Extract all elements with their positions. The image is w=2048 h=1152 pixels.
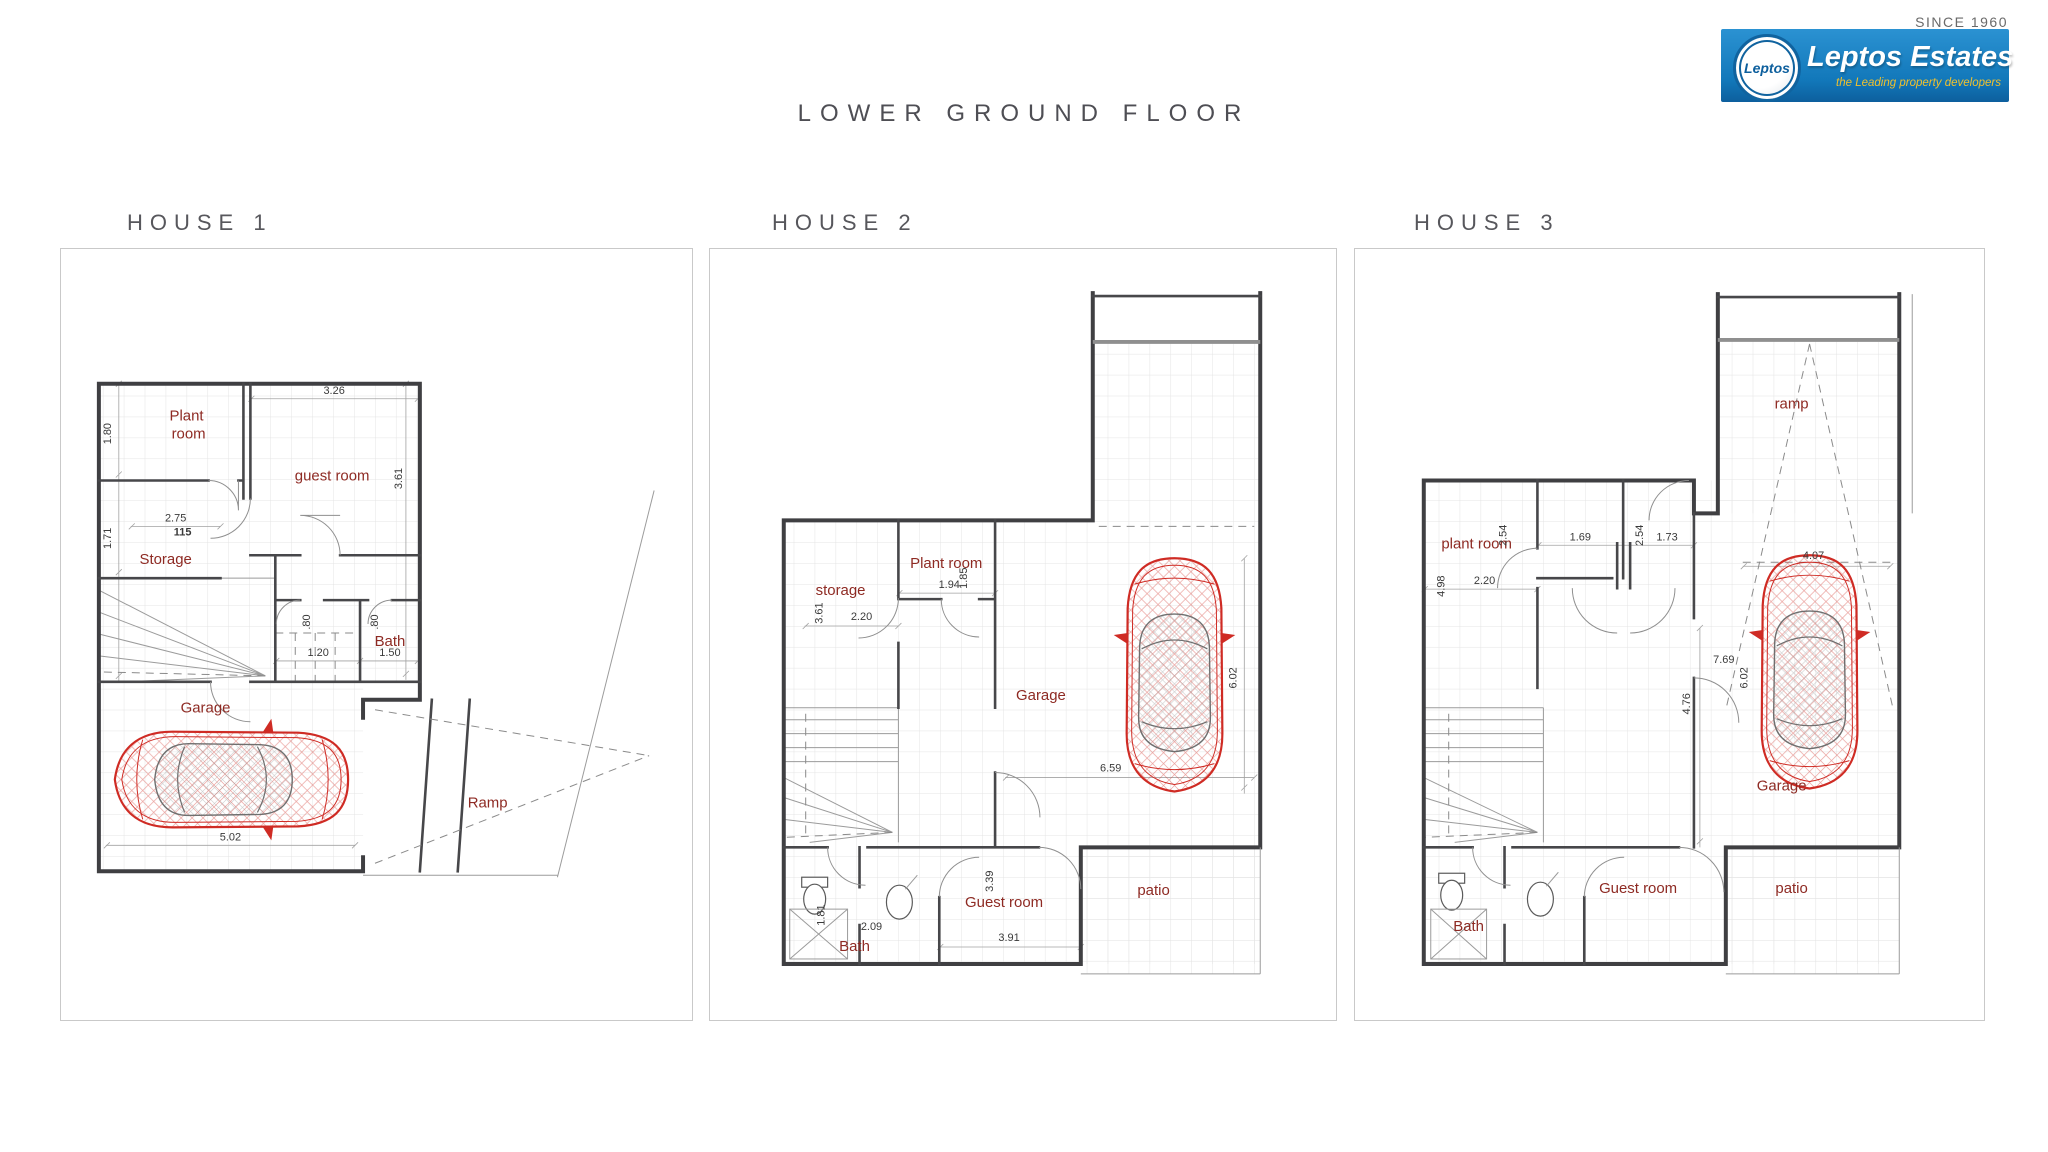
dim-080-b: .80 <box>369 614 381 629</box>
dim-1-81: 1.81 <box>816 904 828 925</box>
dim-5-02: 5.02 <box>220 831 241 843</box>
dim-1-80: 1.80 <box>102 423 114 444</box>
since-1960-text: SINCE 1960 <box>1915 14 2008 30</box>
dim-2-75: 2.75 <box>165 512 186 524</box>
dim-4-98: 4.98 <box>1436 575 1448 596</box>
dim-2-54-b: 2.54 <box>1634 525 1646 546</box>
logo-tagline: the Leading property developers <box>1807 77 2001 89</box>
dim-1-71: 1.71 <box>102 528 114 549</box>
room-label-plant: Plant <box>169 408 204 425</box>
leptos-estates-logo: Leptos Leptos Estates the Leading proper… <box>1721 29 2009 102</box>
house-2-floor-plan: storage Plant room Garage Guest room Bat… <box>710 249 1336 1020</box>
house-1-floor-plan: Plant room guest room Storage Bath Garag… <box>61 249 692 1020</box>
room-label-storage: Storage <box>140 551 192 568</box>
dim-080-a: .80 <box>301 614 313 629</box>
dim-4-76: 4.76 <box>1681 693 1693 714</box>
room-label-garage: Garage <box>1757 778 1807 795</box>
dim-1-69: 1.69 <box>1570 531 1591 543</box>
dim-2-20: 2.20 <box>1474 575 1495 587</box>
dim-3-61: 3.61 <box>814 602 826 623</box>
room-label-plant: Plant room <box>910 555 982 572</box>
house-3-heading: HOUSE 3 <box>1414 210 1560 236</box>
dim-6-02: 6.02 <box>1739 667 1751 688</box>
house-2-heading: HOUSE 2 <box>772 210 918 236</box>
svg-text:Plant room: Plant room <box>169 408 207 443</box>
room-label-guest: Guest room <box>965 894 1043 911</box>
room-label-patio: patio <box>1775 880 1807 897</box>
dim-3-91: 3.91 <box>998 932 1019 944</box>
house-3-panel: plant room ramp Garage Guest room Bath p… <box>1354 248 1985 1021</box>
dim-3-26: 3.26 <box>323 385 344 397</box>
room-label-storage: storage <box>816 582 866 599</box>
dim-1-85: 1.85 <box>958 568 970 589</box>
dim-1-20: 1.20 <box>308 647 329 659</box>
dim-6-59: 6.59 <box>1100 763 1121 775</box>
room-label-bath: Bath <box>1453 918 1484 935</box>
dim-115: 115 <box>174 526 192 538</box>
house-1-panel: Plant room guest room Storage Bath Garag… <box>60 248 693 1021</box>
dim-1-73: 1.73 <box>1656 531 1677 543</box>
room-label-ramp: Ramp <box>468 794 508 811</box>
car-icon <box>1749 555 1871 788</box>
house-2-panel: storage Plant room Garage Guest room Bat… <box>709 248 1337 1021</box>
dim-2-54-a: 2.54 <box>1498 525 1510 546</box>
dim-3-61: 3.61 <box>393 468 405 489</box>
room-label-guest: guest room <box>295 467 370 484</box>
house-3-floor-plan: plant room ramp Garage Guest room Bath p… <box>1355 249 1984 1020</box>
dim-2-09: 2.09 <box>861 921 882 933</box>
house-1-heading: HOUSE 1 <box>127 210 273 236</box>
dim-2-20: 2.20 <box>851 611 872 623</box>
dim-1-50: 1.50 <box>379 647 400 659</box>
room-label-garage: Garage <box>181 700 231 717</box>
leptos-badge-icon: Leptos <box>1733 34 1801 102</box>
dim-6-02: 6.02 <box>1227 667 1239 688</box>
dim-7-69: 7.69 <box>1713 654 1734 666</box>
dim-1-94: 1.94 <box>939 579 960 591</box>
room-label-bath: Bath <box>839 938 870 955</box>
page-title: LOWER GROUND FLOOR <box>0 100 2048 128</box>
room-label-guest: Guest room <box>1599 880 1677 897</box>
logo-name: Leptos Estates <box>1807 41 2003 74</box>
logo-badge-text: Leptos <box>1744 60 1790 76</box>
room-label-patio: patio <box>1137 882 1169 899</box>
dim-4-07: 4.07 <box>1803 550 1824 562</box>
car-icon <box>1114 558 1236 791</box>
car-icon <box>115 719 348 841</box>
room-label-plant2: room <box>172 426 206 443</box>
dim-3-39: 3.39 <box>984 871 996 892</box>
room-label-garage: Garage <box>1016 687 1066 704</box>
room-label-ramp: ramp <box>1775 396 1809 413</box>
